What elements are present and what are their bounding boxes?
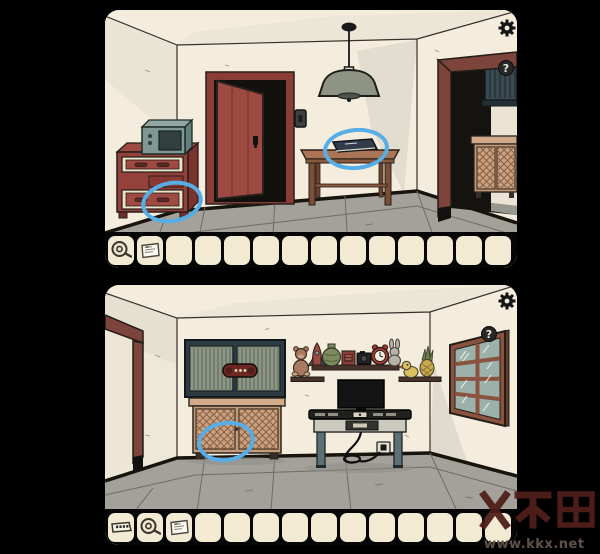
right-doorway[interactable]	[438, 52, 517, 222]
inventory-slot[interactable]	[253, 236, 279, 265]
inventory-slot[interactable]	[137, 513, 163, 542]
inventory-slot[interactable]	[224, 513, 250, 542]
dresser-top-drawer[interactable]	[122, 157, 183, 172]
room-scene-bottom	[105, 285, 517, 545]
inventory-slot[interactable]	[311, 236, 337, 265]
settings-gear-icon[interactable]	[497, 291, 517, 311]
left-doorway[interactable]	[105, 315, 143, 477]
red-door[interactable]	[206, 72, 294, 204]
tv-on-dresser[interactable]	[142, 120, 192, 154]
inventory-bar-bottom	[105, 509, 517, 545]
inventory-slot[interactable]	[369, 513, 395, 542]
inventory-slot[interactable]	[427, 513, 453, 542]
kkx-logo-icon	[476, 485, 600, 535]
room-scene-top	[105, 10, 517, 268]
wall-outlet[interactable]	[377, 442, 390, 453]
help-icon[interactable]: ?	[481, 326, 497, 342]
inventory-item-note-paper[interactable]	[139, 239, 161, 261]
watermark-url: www.kkx.net	[484, 537, 585, 552]
combo-lock[interactable]	[223, 364, 257, 377]
alarm-clock[interactable]	[372, 345, 389, 365]
inventory-slot[interactable]	[108, 513, 134, 542]
inventory-slot[interactable]	[253, 513, 279, 542]
inventory-slot[interactable]	[282, 513, 308, 542]
inventory-slot[interactable]	[456, 236, 482, 265]
inventory-slot[interactable]	[311, 513, 337, 542]
inventory-bar-top	[105, 232, 517, 268]
inventory-item-note-paper[interactable]	[168, 516, 190, 538]
inventory-slot[interactable]	[340, 236, 366, 265]
inventory-slot[interactable]	[485, 236, 511, 265]
inventory-slot[interactable]	[137, 236, 163, 265]
inventory-item-code-strip[interactable]	[110, 516, 132, 538]
inventory-slot[interactable]	[427, 236, 453, 265]
tv[interactable]	[338, 380, 384, 413]
inventory-slot[interactable]	[282, 236, 308, 265]
scene-panel-top: ?	[105, 10, 517, 268]
inventory-slot[interactable]	[398, 513, 424, 542]
camera[interactable]	[357, 351, 371, 364]
inventory-slot[interactable]	[195, 236, 221, 265]
settings-gear-icon[interactable]	[497, 18, 517, 38]
inventory-slot[interactable]	[340, 513, 366, 542]
light-switch[interactable]	[295, 110, 306, 127]
inventory-slot[interactable]	[195, 513, 221, 542]
inventory-slot[interactable]	[224, 236, 250, 265]
kkx-watermark: www.kkx.net	[476, 485, 600, 553]
help-icon[interactable]: ?	[498, 60, 514, 76]
scene-panel-bottom: ?	[105, 285, 517, 545]
inventory-item-tape-roll[interactable]	[110, 239, 132, 261]
slat-wall-cabinet[interactable]	[185, 340, 285, 397]
inventory-slot[interactable]	[166, 236, 192, 265]
inventory-slot[interactable]	[398, 236, 424, 265]
inventory-slot[interactable]	[166, 513, 192, 542]
game-screenshot: ?	[0, 0, 600, 554]
red-box[interactable]	[342, 351, 355, 365]
window[interactable]	[450, 330, 509, 426]
inventory-slot[interactable]	[108, 236, 134, 265]
inventory-item-tape-roll[interactable]	[139, 516, 161, 538]
lattice-sideboard[interactable]	[471, 136, 517, 198]
inventory-slot[interactable]	[369, 236, 395, 265]
